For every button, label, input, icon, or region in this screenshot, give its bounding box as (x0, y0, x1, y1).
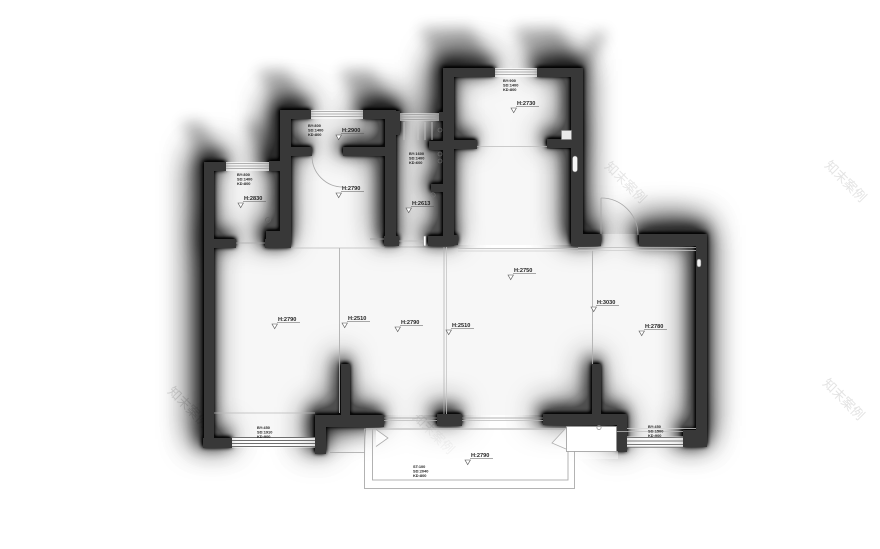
svg-text:KD:900: KD:900 (648, 433, 661, 438)
svg-text:H:2790: H:2790 (342, 186, 360, 192)
svg-text:KD:800: KD:800 (308, 132, 321, 137)
svg-text:KD:800: KD:800 (503, 87, 516, 92)
svg-text:KD:600: KD:600 (409, 160, 422, 165)
svg-text:H:2790: H:2790 (401, 320, 419, 326)
svg-text:H:2790: H:2790 (471, 453, 489, 459)
svg-text:H:2780: H:2780 (645, 324, 663, 330)
svg-text:KD:800: KD:800 (413, 473, 426, 478)
svg-text:H:2790: H:2790 (278, 317, 296, 323)
svg-text:H:2613: H:2613 (412, 201, 430, 207)
svg-text:H:3030: H:3030 (597, 300, 615, 306)
svg-text:H:2830: H:2830 (244, 196, 262, 202)
svg-text:H:2510: H:2510 (348, 316, 366, 322)
svg-text:KD:900: KD:900 (257, 434, 270, 439)
svg-text:H:2900: H:2900 (342, 128, 360, 134)
svg-text:H:2730: H:2730 (517, 101, 535, 107)
svg-text:KD:800: KD:800 (237, 181, 250, 186)
svg-text:H:2750: H:2750 (514, 268, 532, 274)
svg-text:H:2510: H:2510 (452, 323, 470, 329)
